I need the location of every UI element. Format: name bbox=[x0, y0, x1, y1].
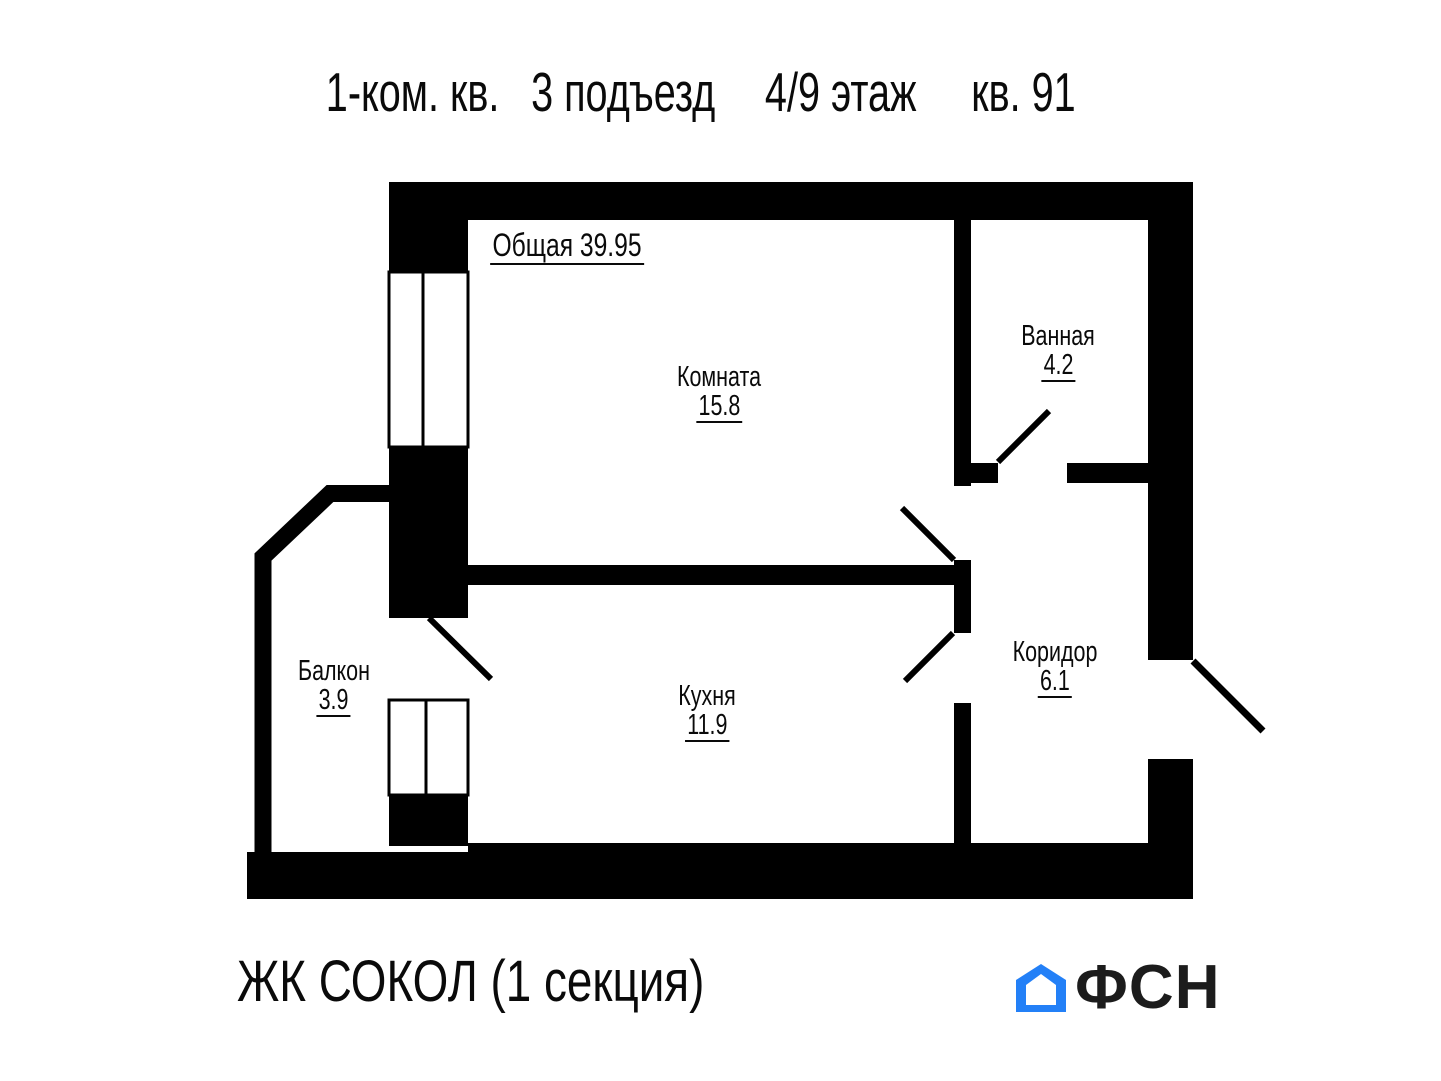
room-name: Коридор bbox=[1013, 639, 1098, 665]
room-label-living-room: Комната 15.8 bbox=[662, 364, 776, 423]
room-area: 6.1 bbox=[1038, 668, 1072, 698]
bathroom-bottom-wall-right bbox=[1067, 463, 1148, 483]
entrance-door-leaf bbox=[1193, 661, 1263, 731]
residential-complex-name: ЖК СОКОЛ (1 секция) bbox=[237, 951, 829, 1013]
right-wall-lower bbox=[1148, 759, 1193, 849]
title-floor: 4/9 этаж bbox=[765, 61, 917, 123]
house-icon bbox=[1016, 964, 1066, 1012]
title-apartment-number: кв. 91 bbox=[971, 61, 1075, 123]
floor-plan-drawing bbox=[0, 0, 1441, 1081]
bottom-wall bbox=[468, 843, 1193, 899]
room-name: Ванная bbox=[1021, 323, 1095, 349]
top-wall bbox=[389, 182, 1193, 220]
room-area: 3.9 bbox=[317, 687, 351, 717]
room-door-leaf bbox=[902, 508, 954, 560]
room-label-bathroom: Ванная 4.2 bbox=[1008, 323, 1107, 382]
room-area: 4.2 bbox=[1041, 352, 1075, 382]
bottom-wall-balcony bbox=[247, 852, 468, 899]
kitchen-door-leaf bbox=[905, 633, 953, 681]
room-label-kitchen: Кухня 11.9 bbox=[668, 683, 746, 742]
page-title: 1-ком. кв.3 подъезд4/9 этажкв. 91 bbox=[0, 63, 1441, 121]
room-area: 11.9 bbox=[685, 712, 730, 742]
left-wall-middle bbox=[389, 446, 468, 618]
title-rooms-count: 1-ком. кв. bbox=[326, 61, 500, 123]
room-kitchen-divider-wall bbox=[468, 565, 954, 585]
room-area: 15.8 bbox=[696, 393, 742, 423]
room-name: Кухня bbox=[678, 683, 735, 709]
window-balcony-door bbox=[389, 700, 468, 795]
room-name: Балкон bbox=[298, 658, 370, 684]
bathroom-door-leaf bbox=[998, 411, 1049, 462]
room-label-balcony: Балкон 3.9 bbox=[285, 658, 382, 717]
left-wall-lower bbox=[389, 794, 468, 846]
developer-logo: ФСН bbox=[1016, 961, 1220, 1015]
logo-text: ФСН bbox=[1075, 961, 1220, 1015]
floor-plan-page: 1-ком. кв.3 подъезд4/9 этажкв. 91 Общая … bbox=[0, 0, 1441, 1081]
room-label-corridor: Коридор 6.1 bbox=[998, 639, 1113, 698]
corridor-wall-lower bbox=[954, 703, 971, 845]
window-living-room bbox=[389, 272, 468, 447]
bathroom-bottom-wall-left bbox=[971, 463, 998, 483]
room-name: Комната bbox=[677, 364, 761, 390]
bathroom-left-wall bbox=[954, 218, 971, 486]
corridor-wall-middle bbox=[954, 560, 971, 633]
left-wall-upper bbox=[389, 218, 468, 274]
balcony-door-leaf bbox=[429, 618, 491, 679]
total-area-label: Общая 39.95 bbox=[467, 229, 667, 265]
right-wall-upper bbox=[1148, 218, 1193, 660]
title-entrance: 3 подъезд bbox=[531, 61, 715, 123]
